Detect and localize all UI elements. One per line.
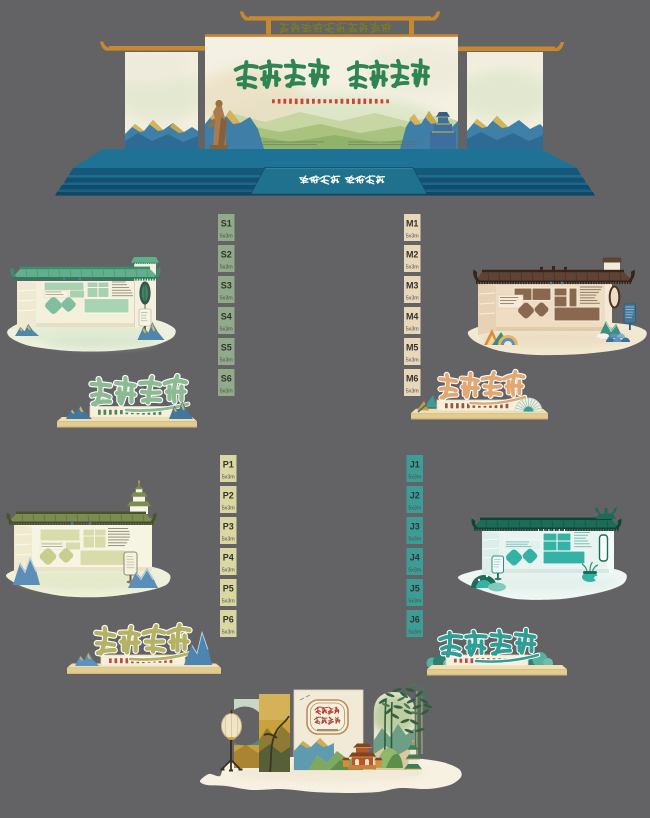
- svg-text:M1: M1: [406, 219, 419, 229]
- svg-text:P1: P1: [223, 460, 234, 470]
- svg-text:5x3m: 5x3m: [220, 234, 234, 240]
- svg-text:P3: P3: [223, 522, 234, 532]
- svg-text:P6: P6: [223, 615, 234, 625]
- svg-text:5x3m: 5x3m: [408, 630, 422, 636]
- svg-text:5x3m: 5x3m: [222, 630, 236, 636]
- svg-text:S5: S5: [221, 343, 232, 353]
- svg-text:P2: P2: [223, 491, 234, 501]
- svg-text:S2: S2: [221, 250, 232, 260]
- svg-text:5x3m: 5x3m: [220, 265, 234, 271]
- svg-text:J3: J3: [410, 522, 420, 532]
- svg-text:5x3m: 5x3m: [222, 599, 236, 605]
- svg-text:M4: M4: [406, 312, 419, 322]
- svg-text:5x3m: 5x3m: [406, 327, 420, 333]
- svg-text:S3: S3: [221, 281, 232, 291]
- svg-text:J1: J1: [410, 460, 420, 470]
- svg-text:P4: P4: [223, 553, 234, 563]
- svg-text:5x3m: 5x3m: [220, 296, 234, 302]
- svg-text:S6: S6: [221, 374, 232, 384]
- svg-text:5x3m: 5x3m: [408, 537, 422, 543]
- svg-text:5x3m: 5x3m: [220, 389, 234, 395]
- svg-text:M2: M2: [406, 250, 419, 260]
- svg-text:5x3m: 5x3m: [406, 358, 420, 364]
- svg-text:J6: J6: [410, 615, 420, 625]
- svg-text:5x3m: 5x3m: [406, 265, 420, 271]
- svg-text:M5: M5: [406, 343, 419, 353]
- svg-text:J2: J2: [410, 491, 420, 501]
- svg-text:S1: S1: [221, 219, 232, 229]
- svg-text:5x3m: 5x3m: [220, 327, 234, 333]
- svg-text:P5: P5: [223, 584, 234, 594]
- svg-text:5x3m: 5x3m: [408, 475, 422, 481]
- svg-text:5x3m: 5x3m: [222, 568, 236, 574]
- svg-text:5x3m: 5x3m: [406, 389, 420, 395]
- svg-text:5x3m: 5x3m: [408, 599, 422, 605]
- svg-text:J4: J4: [410, 553, 420, 563]
- svg-text:5x3m: 5x3m: [408, 568, 422, 574]
- svg-text:5x3m: 5x3m: [222, 537, 236, 543]
- svg-text:5x3m: 5x3m: [222, 475, 236, 481]
- svg-text:5x3m: 5x3m: [406, 234, 420, 240]
- svg-text:5x3m: 5x3m: [222, 506, 236, 512]
- svg-text:5x3m: 5x3m: [406, 296, 420, 302]
- svg-text:5x3m: 5x3m: [220, 358, 234, 364]
- svg-text:5x3m: 5x3m: [408, 506, 422, 512]
- svg-text:J5: J5: [410, 584, 420, 594]
- svg-text:M6: M6: [406, 374, 419, 384]
- svg-text:M3: M3: [406, 281, 419, 291]
- svg-text:S4: S4: [221, 312, 232, 322]
